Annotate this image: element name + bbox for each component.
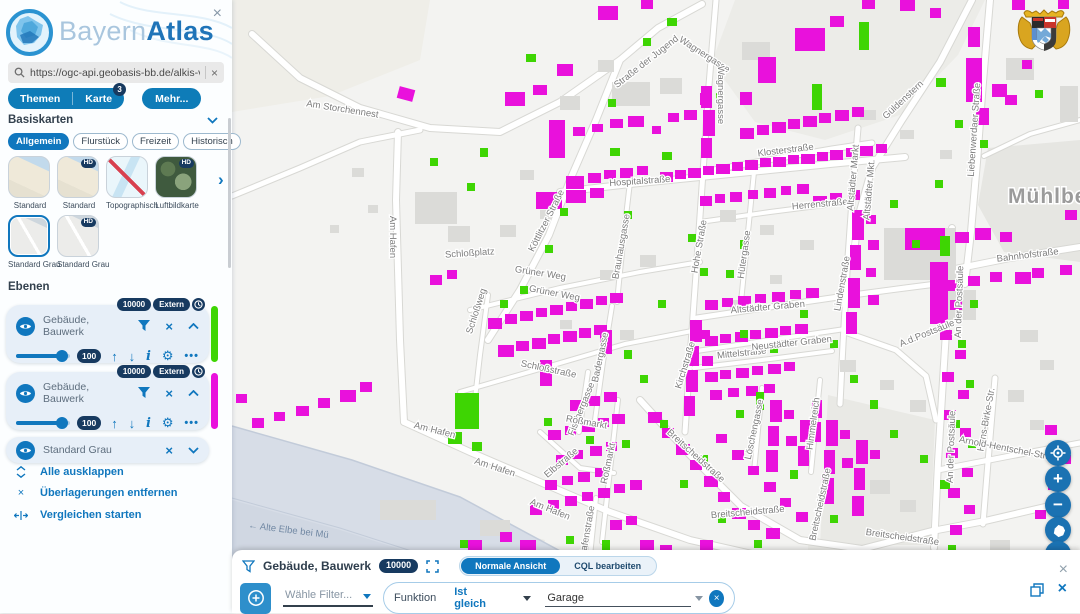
basiskarten-header: Basiskarten [8, 114, 218, 126]
themen-button[interactable]: Themen [8, 93, 72, 105]
clock-icon [192, 365, 205, 378]
extern-badge: Extern [153, 298, 190, 311]
tab-historisch[interactable]: Historisch [183, 133, 241, 150]
search-clear-icon[interactable]: × [211, 67, 218, 79]
svg-text:Löschengasse: Löschengasse [743, 398, 767, 460]
filter-operator-select[interactable]: Ist gleich [454, 586, 495, 610]
svg-text:Schloßplatz: Schloßplatz [445, 246, 496, 260]
opacity-slider[interactable] [16, 421, 70, 425]
hd-badge: HD [81, 159, 96, 168]
layer-name: Standard Grau [43, 444, 157, 456]
settings-gear-icon[interactable]: ⚙ [162, 348, 174, 364]
remove-layer-icon[interactable]: × [165, 387, 173, 400]
filter-icon[interactable] [138, 320, 150, 332]
search-bar: × [8, 62, 224, 83]
main-nav: Themen Karte 3 Mehr... [8, 88, 201, 109]
filter-row: Wähle Filter... Funktion Ist gleich × [240, 582, 1080, 614]
filter-expression-group: Funktion Ist gleich × [383, 582, 735, 614]
basemap-standard-grau-selected[interactable] [8, 215, 50, 257]
move-down-icon[interactable]: ↓ [129, 350, 136, 363]
default-extent-button[interactable] [1045, 517, 1071, 543]
tab-allgemein[interactable]: Allgemein [8, 133, 69, 150]
compare-label: Vergleichen starten [40, 509, 142, 521]
svg-text:An der Postsäule: An der Postsäule [945, 411, 959, 484]
road [232, 130, 420, 196]
basemap-label: Standard Grau [57, 260, 101, 269]
nav-pill-group: Themen Karte 3 [8, 88, 124, 109]
road [685, 172, 703, 432]
expand-all-icon [14, 466, 28, 478]
settings-gear-icon[interactable]: ⚙ [162, 415, 174, 431]
opacity-slider[interactable] [16, 354, 70, 358]
plus-icon: + [1053, 469, 1063, 489]
basemap-label: Standard [8, 201, 52, 210]
slider-thumb[interactable] [56, 350, 68, 362]
svg-text:Hohe Straße: Hohe Straße [689, 219, 709, 274]
svg-text:Wagnergasse: Wagnergasse [715, 66, 726, 124]
layer-card-standard-grau: Standard Grau × [6, 437, 209, 463]
karte-badge: 3 [113, 83, 126, 96]
more-options-icon[interactable]: ••• [184, 417, 199, 429]
value-caret-icon [695, 596, 703, 601]
opacity-value: 100 [77, 416, 101, 429]
add-filter-button[interactable] [240, 583, 271, 614]
filter-layer-title: Gebäude, Bauwerk [263, 559, 371, 573]
remove-overlays-icon: × [14, 487, 28, 499]
filter-panel-header: Gebäude, Bauwerk 10000 Normale Ansicht C… [232, 550, 1080, 576]
slider-thumb[interactable] [56, 417, 68, 429]
basemap-standard-grau-hd[interactable]: HD [57, 215, 99, 257]
move-up-icon[interactable]: ↑ [111, 417, 118, 430]
cql-edit-tab[interactable]: CQL bearbeiten [560, 558, 655, 574]
sidebar-scrollbar[interactable] [228, 118, 231, 268]
view-mode-toggle: Normale Ansicht CQL bearbeiten [459, 556, 657, 576]
hd-badge: HD [179, 159, 194, 168]
basemap-label: Standard Grau [8, 260, 52, 269]
info-icon[interactable]: i [146, 416, 151, 431]
bavaria-logo-icon [10, 13, 49, 52]
minus-icon: − [1053, 495, 1063, 515]
scale-badge: 10000 [117, 365, 151, 378]
expand-icon[interactable] [188, 447, 199, 454]
basemap-thumbs-row2: Standard Grau HDStandard Grau [8, 215, 101, 269]
layer-card-gebaeude-1: 10000 Extern Gebäude, Bauwerk × 100 ↑ ↓ … [6, 305, 209, 363]
move-down-icon[interactable]: ↓ [129, 417, 136, 430]
svg-text:Herrenstraße: Herrenstraße [791, 197, 848, 213]
basemap-thumbs-row1: Standard HDStandard Topographisch HDLuft… [8, 156, 199, 210]
filter-outline-icon [242, 560, 255, 573]
search-input[interactable] [30, 67, 200, 79]
sidebar-close-icon[interactable]: × [213, 6, 222, 22]
visibility-eye-icon[interactable] [16, 317, 35, 336]
layer-name: Gebäude, Bauwerk [43, 314, 130, 338]
remove-layer-icon[interactable]: × [165, 320, 173, 333]
panel-close-icon[interactable]: × [1058, 581, 1067, 597]
search-divider [205, 66, 206, 79]
operator-caret-icon [523, 596, 531, 601]
tab-freizeit[interactable]: Freizeit [132, 133, 179, 150]
scale-badge: 10000 [117, 298, 151, 311]
svg-text:Am Hafen: Am Hafen [387, 216, 398, 258]
remove-overlays-label: Überlagerungen entfernen [40, 487, 178, 499]
ebenen-title: Ebenen [8, 281, 50, 293]
basemap-label: Standard [57, 201, 101, 210]
expand-all-label: Alle ausklappen [40, 466, 124, 478]
ebenen-header: Ebenen [8, 281, 218, 293]
collapse-icon[interactable] [188, 323, 199, 330]
svg-text:Altstädter Mkt.: Altstädter Mkt. [861, 159, 877, 220]
circle-plus-icon [247, 589, 265, 607]
basemap-luftbildkarte[interactable]: HD [155, 156, 197, 198]
basiskarten-title: Basiskarten [8, 114, 73, 126]
basemap-tabs: Allgemein Flurstück Freizeit Historisch [8, 133, 241, 150]
move-up-icon[interactable]: ↑ [111, 350, 118, 363]
visibility-eye-icon[interactable] [16, 384, 35, 403]
basemap-standard-2[interactable]: HD [57, 156, 99, 198]
choose-filter-label: Wähle Filter... [285, 589, 352, 601]
geolocate-button[interactable] [1045, 440, 1071, 466]
place-label-muehlberg: Mühlberg [1008, 185, 1080, 208]
more-options-icon[interactable]: ••• [184, 350, 199, 362]
opacity-value: 100 [77, 349, 101, 362]
layer-name: Gebäude, Bauwerk [43, 381, 130, 405]
mehr-button[interactable]: Mehr... [142, 88, 201, 109]
extern-badge: Extern [153, 365, 190, 378]
fullscreen-scan-icon[interactable] [426, 560, 439, 573]
dropdown-caret-icon [363, 594, 371, 599]
zoom-in-button[interactable]: + [1045, 466, 1071, 492]
tab-flurstueck[interactable]: Flurstück [73, 133, 128, 150]
collapse-icon[interactable] [188, 390, 199, 397]
filter-scale-badge: 10000 [379, 559, 418, 573]
filter-field-label: Funktion [394, 592, 436, 604]
remove-overlays-link[interactable]: × Überlagerungen entfernen [14, 487, 178, 499]
compare-link[interactable]: Vergleichen starten [14, 509, 142, 521]
brand-atlas: Atlas [146, 16, 214, 46]
filter-panel-close-icon[interactable]: × [1059, 562, 1068, 578]
svg-text:Hospitalstraße: Hospitalstraße [609, 174, 671, 189]
layer-card-gebaeude-2: 10000 Extern Gebäude, Bauwerk × 100 ↑ ↓ … [6, 372, 209, 430]
info-icon[interactable]: i [146, 349, 151, 364]
detach-window-icon[interactable] [1030, 583, 1044, 597]
brand-wordmark: BayernAtlas [59, 16, 214, 47]
hd-badge: HD [81, 218, 96, 227]
expand-all-link[interactable]: Alle ausklappen [14, 466, 124, 478]
filter-value-input[interactable] [545, 590, 691, 607]
svg-text:Badergasse: Badergasse [590, 332, 611, 384]
sidebar: × BayernAtlas × Themen Karte 3 Mehr... B… [0, 0, 232, 613]
chevron-down-icon[interactable] [207, 117, 218, 124]
chevron-right-icon[interactable]: › [218, 170, 224, 190]
geolocate-icon [1050, 445, 1066, 461]
clock-icon [192, 298, 205, 311]
svg-text:Breitscheidstraße: Breitscheidstraße [710, 504, 785, 521]
filter-icon[interactable] [138, 387, 150, 399]
choose-filter-dropdown[interactable]: Wähle Filter... [283, 589, 373, 607]
basemap-standard-1[interactable] [8, 156, 50, 198]
normal-view-tab[interactable]: Normale Ansicht [461, 558, 560, 574]
compare-icon [14, 511, 28, 520]
basemap-label: Topographisch [106, 201, 150, 210]
zoom-out-button[interactable]: − [1045, 492, 1071, 518]
basemap-topographisch[interactable] [106, 156, 148, 198]
filter-panel: Gebäude, Bauwerk 10000 Normale Ansicht C… [232, 550, 1080, 613]
bavaria-shape-icon [1051, 523, 1066, 538]
bayernatlas-logo [6, 9, 53, 56]
bavaria-coat-of-arms [1016, 7, 1072, 53]
search-icon [14, 67, 25, 78]
visibility-eye-icon[interactable] [16, 441, 35, 460]
remove-layer-icon[interactable]: × [165, 444, 173, 457]
basemap-label: Luftbildkarte [155, 201, 199, 210]
brand-bayern: Bayern [59, 16, 146, 46]
svg-text:Brauhausgasse: Brauhausgasse [610, 213, 632, 280]
svg-text:Hütergasse: Hütergasse [736, 230, 754, 280]
remove-filter-button[interactable]: × [709, 590, 724, 607]
layer-color-stripe-green [211, 306, 218, 362]
layer-color-stripe-magenta [211, 373, 218, 429]
